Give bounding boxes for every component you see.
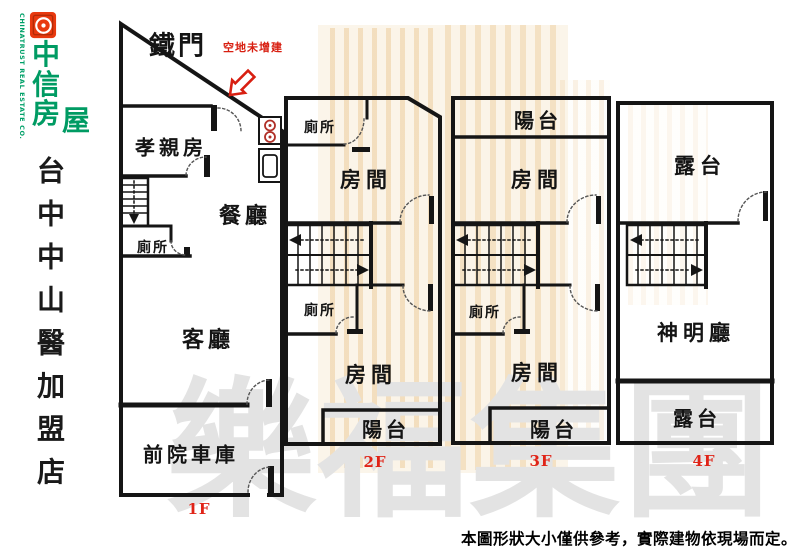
logo-char-3: 房 bbox=[32, 100, 60, 128]
label-f2-toilet-top: 廁所 bbox=[304, 117, 336, 137]
label-f3-balcony-bottom: 陽台 bbox=[530, 414, 578, 443]
label-f3: 3F bbox=[529, 452, 552, 470]
logo-char-2: 信 bbox=[32, 71, 60, 99]
label-f4-shrine: 神明廳 bbox=[657, 317, 735, 347]
logo-english-text: CHINATRUST REAL ESTATE CO. bbox=[18, 13, 26, 140]
stairs-4f bbox=[627, 225, 706, 285]
chinatrust-logo-icon bbox=[29, 11, 58, 40]
sink-icon bbox=[259, 149, 281, 182]
logo-char-4: 屋 bbox=[62, 107, 90, 135]
stairs-3f bbox=[453, 225, 538, 285]
logo-char-1: 中 bbox=[32, 41, 60, 69]
label-iron-gate: 鐵門 bbox=[149, 26, 207, 63]
label-f3-room-top: 房間 bbox=[511, 164, 563, 194]
floorplan-page: 樂福集團 CHINATRUST REAL ESTATE CO. 中 信 房 屋 … bbox=[0, 0, 800, 553]
store-name-vertical: 台中中山醫加盟店 bbox=[29, 156, 69, 516]
disclaimer-text: 本圖形狀大小僅供參考，實際建物依現場而定。 bbox=[461, 527, 797, 549]
label-f4: 4F bbox=[692, 452, 715, 470]
label-f2-room-top: 房間 bbox=[340, 164, 392, 194]
floor-1f-walls bbox=[121, 24, 282, 499]
label-f3-room-bottom: 房間 bbox=[511, 357, 563, 387]
vacant-lot-arrow-icon bbox=[224, 67, 258, 101]
floor-3f-walls bbox=[453, 98, 609, 443]
label-f1-dining: 餐廳 bbox=[219, 198, 271, 230]
label-f2-toilet-mid: 廁所 bbox=[304, 300, 336, 320]
label-f2: 2F bbox=[363, 453, 386, 471]
floorplan-linework bbox=[0, 0, 800, 553]
label-f1-toilet: 廁所 bbox=[137, 237, 169, 257]
label-f3-toilet-mid: 廁所 bbox=[469, 302, 501, 322]
stove-icon bbox=[259, 117, 281, 144]
label-f2-room-bottom: 房間 bbox=[345, 359, 397, 389]
stairs-2f bbox=[286, 225, 371, 285]
floor-2f-walls bbox=[286, 98, 440, 444]
label-f1: 1F bbox=[187, 500, 210, 518]
label-f2-balcony: 陽台 bbox=[362, 414, 410, 443]
label-f1-parents-room: 孝親房 bbox=[135, 132, 207, 161]
stairs-1f bbox=[121, 178, 148, 226]
label-f4-terrace-bottom: 露台 bbox=[673, 403, 721, 432]
label-vacant-note: 空地未增建 bbox=[223, 39, 283, 55]
label-f1-living: 客廳 bbox=[182, 322, 234, 354]
label-f4-terrace-top: 露台 bbox=[674, 150, 726, 180]
label-f1-garage: 前院車庫 bbox=[143, 439, 239, 468]
label-f3-balcony-top: 陽台 bbox=[514, 105, 562, 134]
